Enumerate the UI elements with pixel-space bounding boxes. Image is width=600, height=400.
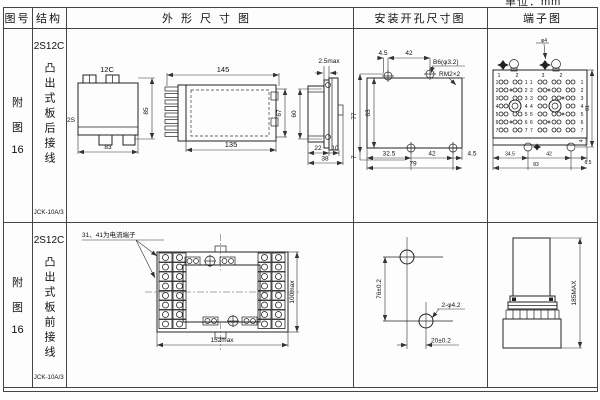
- center-num: 11: [525, 80, 535, 86]
- dim-79: 79: [409, 161, 417, 168]
- fig-char: 16: [11, 144, 23, 156]
- dim-7: 7: [351, 155, 358, 159]
- mount-type: 凸出式板前接线: [41, 256, 57, 374]
- row-num: 6: [496, 120, 499, 126]
- fig-char: 图: [12, 119, 23, 135]
- front-wiring-mounting-drawing: 76±0.2 2-φ4.2 20±0.2: [353, 222, 487, 387]
- dim-76: 76±0.2: [376, 279, 383, 299]
- center-num: 33: [525, 96, 536, 102]
- dim-135: 135: [225, 140, 238, 149]
- dim-34-5: 34.5: [505, 152, 515, 158]
- header-structure: 结构: [32, 7, 66, 28]
- terminal-grid: [499, 80, 575, 132]
- fig-char: 图: [12, 299, 23, 315]
- fig-char: 附: [12, 274, 23, 290]
- row-num: 1: [581, 80, 584, 86]
- catalog-page: 单位：mm 图号 结构 外形尺寸图 安装开孔尺寸图 端子图 附 图 16 2S1…: [0, 0, 600, 400]
- hole-callout: 2-φ4.2: [441, 302, 460, 309]
- mount-type: 凸出式板后接线: [41, 62, 57, 209]
- relay-type: JCK-10A/3: [34, 374, 64, 381]
- dim-152max: 152max: [210, 337, 234, 344]
- rear-wiring-mounting-drawing: B6(φ3.2) RM2×2 4.5 42 77 63 7 32.5 42 4.…: [353, 28, 487, 222]
- hole-callout: B6(φ3.2): [433, 59, 459, 66]
- dim-2-5max: 2.5max: [318, 58, 340, 65]
- dim-145: 145: [217, 65, 230, 74]
- center-num: 55: [525, 112, 536, 118]
- dim-42-top: 42: [405, 50, 413, 57]
- relay-type: JCK-10A/3: [34, 209, 64, 216]
- front-wiring-outline-drawing: 31、41为电流端子 100max 152max: [66, 222, 353, 387]
- dim-2s: 2S: [67, 117, 76, 124]
- header-mounting: 安装开孔尺寸图: [353, 7, 487, 28]
- dim-42-term: 42: [546, 152, 552, 158]
- dim-85: 85: [143, 107, 150, 115]
- dim-10: 10: [331, 145, 339, 152]
- center-num: 66: [525, 120, 536, 126]
- dim-4: 4: [579, 139, 585, 142]
- dim-22: 22: [314, 145, 322, 152]
- header-terminal: 端子图: [487, 7, 598, 28]
- terminal-strips: [159, 253, 285, 329]
- dim-83-term: 83: [533, 162, 539, 168]
- row-num: 7: [581, 128, 584, 134]
- dim-67: 67: [276, 109, 283, 117]
- model-code: 2S12C: [34, 235, 65, 246]
- dim-185max: 185MAX: [571, 280, 578, 306]
- dim-20: 20±0.2: [431, 338, 451, 345]
- dim-38: 38: [321, 156, 329, 163]
- header-outline: 外形尺寸图: [66, 7, 353, 28]
- bottom-divider: [3, 387, 598, 388]
- header-fig-no: 图号: [3, 7, 32, 28]
- rear-wiring-terminal-diagram: φ4 1 2 3 2 1 2 3 4 5 6 7 1 2 3: [487, 28, 598, 222]
- center-num: 22: [525, 88, 536, 94]
- dim-81: 81: [585, 105, 591, 111]
- row-num: 4: [496, 104, 499, 110]
- socket-comb: [506, 310, 559, 319]
- row-num: 4: [581, 104, 584, 110]
- dim-4-5-top: 4.5: [378, 50, 387, 57]
- mounting-screw-icon: [497, 60, 509, 70]
- center-num: 77: [525, 128, 536, 134]
- model-code: 2S12C: [34, 41, 65, 52]
- dim-77: 77: [351, 112, 358, 120]
- dim-32-5: 32.5: [383, 151, 396, 158]
- mounting-screw-icon: [539, 60, 551, 70]
- col-mark: 2: [516, 73, 519, 79]
- col-mark: 3: [542, 73, 545, 79]
- structure-cell-row1: 2S12C 凸出式板后接线 JCK-10A/3: [32, 28, 66, 222]
- row-num: 2: [581, 88, 584, 94]
- dim-60: 60: [291, 110, 298, 118]
- col-mark: 2: [560, 73, 563, 79]
- row-num: 3: [581, 96, 584, 102]
- dim-63: 63: [365, 109, 372, 117]
- row-num: 2: [496, 88, 499, 94]
- stud-callout: RM2×2: [439, 71, 461, 78]
- row-num: 1: [496, 80, 499, 86]
- front-wiring-terminal-side-view: 185MAX: [487, 222, 598, 387]
- row-num: 5: [581, 112, 584, 118]
- col-mark: 1: [498, 73, 501, 79]
- fig-number-cell-row2: 附 图 16: [3, 222, 32, 387]
- fig-number-cell-row1: 附 图 16: [3, 28, 32, 222]
- fig-char: 16: [11, 324, 23, 336]
- row-num: 3: [496, 96, 499, 102]
- dim-100max: 100max: [289, 280, 296, 304]
- dim-42-bottom: 42: [428, 151, 436, 158]
- structure-cell-row2: 2S12C 凸出式板前接线 JCK-10A/3: [32, 222, 66, 387]
- fig-char: 附: [12, 94, 23, 110]
- rear-wiring-outline-drawing: 12C 2S 85 83 145 135 67: [66, 28, 353, 222]
- dim-4-5-bottom: 4.5: [467, 151, 476, 158]
- dim-6-5: 6.5: [585, 160, 592, 166]
- row-num: 5: [496, 112, 499, 118]
- dim-12c: 12C: [100, 65, 114, 74]
- terminal-pins: [165, 87, 178, 137]
- row-num: 7: [496, 128, 499, 134]
- row-num: 6: [581, 120, 584, 126]
- center-num: 44: [525, 104, 536, 110]
- current-terminal-note: 31、41为电流端子: [82, 230, 136, 239]
- dim-83: 83: [104, 144, 112, 151]
